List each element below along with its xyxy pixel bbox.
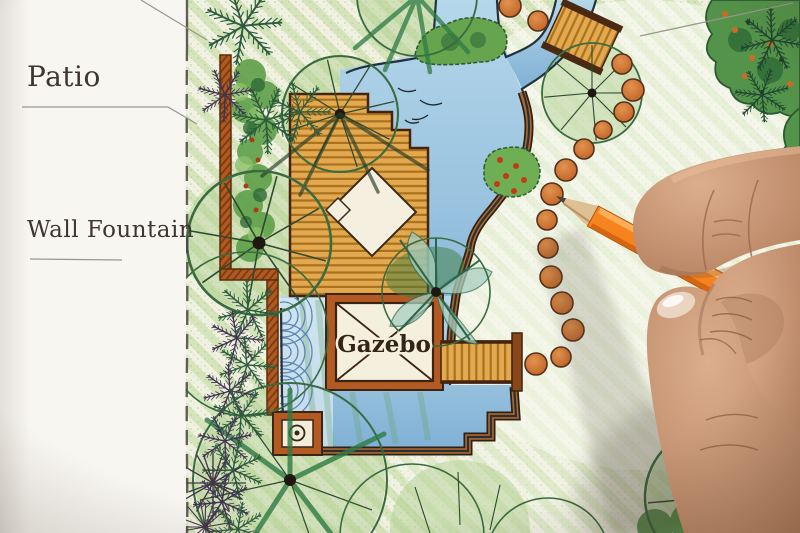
landscape-plan-photo: Gazebo Patio Wall Fountain <box>0 0 800 533</box>
photo-vignette <box>0 0 800 533</box>
plan-drawing: Gazebo Patio Wall Fountain <box>0 0 800 533</box>
